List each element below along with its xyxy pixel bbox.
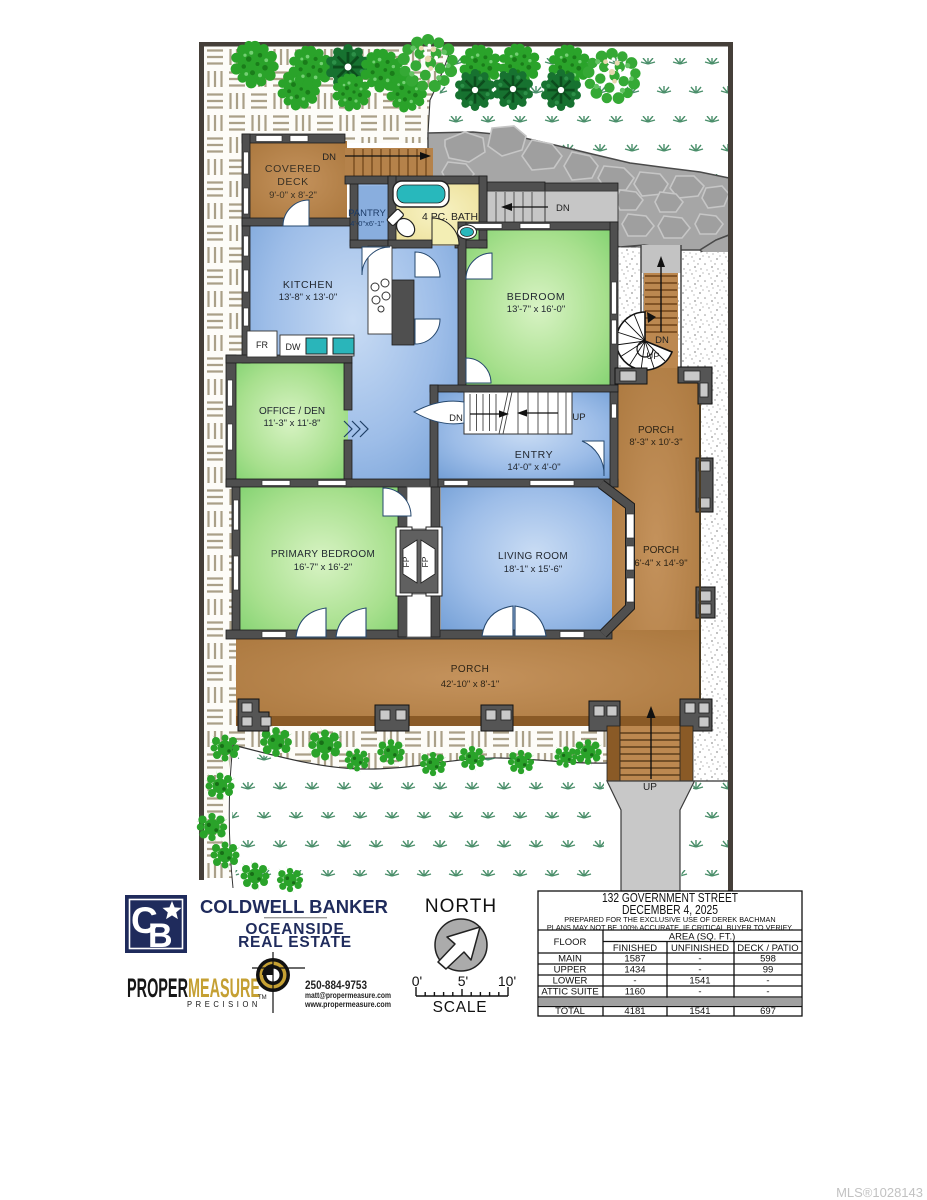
svg-text:OFFICE / DEN: OFFICE / DEN xyxy=(259,406,325,417)
svg-text:4181: 4181 xyxy=(624,1006,645,1017)
svg-text:FR: FR xyxy=(256,340,268,350)
svg-text:FINISHED: FINISHED xyxy=(613,943,657,954)
svg-text:13'-8" x 13'-0": 13'-8" x 13'-0" xyxy=(279,292,337,303)
svg-text:5': 5' xyxy=(458,973,468,989)
svg-text:ENTRY: ENTRY xyxy=(515,449,553,461)
svg-text:PORCH: PORCH xyxy=(643,545,679,556)
svg-text:1587: 1587 xyxy=(624,954,645,965)
svg-text:PORCH: PORCH xyxy=(638,425,674,436)
svg-text:697: 697 xyxy=(760,1006,776,1017)
svg-text:BEDROOM: BEDROOM xyxy=(507,291,565,303)
svg-text:4'-0"x6'-1": 4'-0"x6'-1" xyxy=(350,219,384,228)
svg-text:10': 10' xyxy=(498,973,516,989)
svg-text:ATTIC SUITE: ATTIC SUITE xyxy=(541,987,598,998)
svg-text:8'-3" x 10'-3": 8'-3" x 10'-3" xyxy=(629,437,682,448)
svg-text:B: B xyxy=(148,917,173,955)
svg-text:COVERED: COVERED xyxy=(265,163,321,175)
svg-text:UPPER: UPPER xyxy=(554,965,587,976)
svg-text:DN: DN xyxy=(655,335,669,346)
svg-text:PRECISION: PRECISION xyxy=(187,999,261,1009)
svg-text:-: - xyxy=(766,976,769,987)
svg-text:598: 598 xyxy=(760,954,776,965)
svg-text:6'-4" x 14'-9": 6'-4" x 14'-9" xyxy=(634,558,687,569)
svg-text:DN: DN xyxy=(322,152,336,163)
svg-text:www.propermeasure.com: www.propermeasure.com xyxy=(304,999,391,1009)
svg-text:-: - xyxy=(698,954,701,965)
svg-text:4 PC. BATH: 4 PC. BATH xyxy=(422,212,478,223)
svg-text:1434: 1434 xyxy=(624,965,645,976)
svg-text:NORTH: NORTH xyxy=(425,896,497,917)
svg-text:LOWER: LOWER xyxy=(553,976,588,987)
svg-text:DECK: DECK xyxy=(277,176,309,188)
svg-text:-: - xyxy=(698,987,701,998)
svg-text:LIVING ROOM: LIVING ROOM xyxy=(498,551,568,562)
svg-text:UP: UP xyxy=(643,782,657,793)
svg-text:SCALE: SCALE xyxy=(433,999,488,1016)
svg-text:1160: 1160 xyxy=(625,987,645,998)
svg-text:AREA (SQ. FT.): AREA (SQ. FT.) xyxy=(669,932,736,943)
svg-text:PRIMARY BEDROOM: PRIMARY BEDROOM xyxy=(271,549,375,560)
svg-text:DN: DN xyxy=(449,413,463,424)
svg-text:UNFINISHED: UNFINISHED xyxy=(671,943,729,954)
svg-text:FP: FP xyxy=(401,556,411,567)
svg-text:FLOOR: FLOOR xyxy=(554,937,587,948)
svg-text:-: - xyxy=(698,965,701,976)
svg-text:UP: UP xyxy=(572,412,585,423)
svg-text:99: 99 xyxy=(763,965,774,976)
svg-text:14'-0" x 4'-0": 14'-0" x 4'-0" xyxy=(507,462,560,473)
svg-text:-: - xyxy=(633,976,636,987)
svg-text:FP: FP xyxy=(420,556,430,567)
svg-text:DW: DW xyxy=(286,342,301,352)
svg-text:9'-0" x 8'-2": 9'-0" x 8'-2" xyxy=(269,190,317,201)
svg-text:PANTRY: PANTRY xyxy=(348,208,386,219)
svg-text:16'-7" x 16'-2": 16'-7" x 16'-2" xyxy=(294,562,352,573)
svg-text:1541: 1541 xyxy=(689,1006,710,1017)
svg-text:MLS®1028143: MLS®1028143 xyxy=(836,1185,923,1200)
svg-text:13'-7" x 16'-0": 13'-7" x 16'-0" xyxy=(507,304,565,315)
svg-text:11'-3" x 11'-8": 11'-3" x 11'-8" xyxy=(263,418,320,429)
svg-text:REAL ESTATE: REAL ESTATE xyxy=(238,934,352,951)
svg-text:18'-1" x 15'-6": 18'-1" x 15'-6" xyxy=(504,564,562,575)
svg-text:KITCHEN: KITCHEN xyxy=(283,279,333,291)
svg-text:-: - xyxy=(766,987,769,998)
svg-text:42'-10" x 8'-1": 42'-10" x 8'-1" xyxy=(441,679,499,690)
svg-text:COLDWELL BANKER: COLDWELL BANKER xyxy=(200,896,388,917)
svg-text:0': 0' xyxy=(412,973,422,989)
svg-text:DN: DN xyxy=(556,203,570,214)
svg-text:UP: UP xyxy=(646,351,659,362)
svg-text:PROPER: PROPER xyxy=(127,973,188,1003)
svg-text:TOTAL: TOTAL xyxy=(555,1006,585,1017)
svg-text:DECK / PATIO: DECK / PATIO xyxy=(737,943,798,954)
svg-text:MAIN: MAIN xyxy=(558,954,582,965)
svg-text:PORCH: PORCH xyxy=(451,664,490,675)
svg-text:1541: 1541 xyxy=(689,976,710,987)
